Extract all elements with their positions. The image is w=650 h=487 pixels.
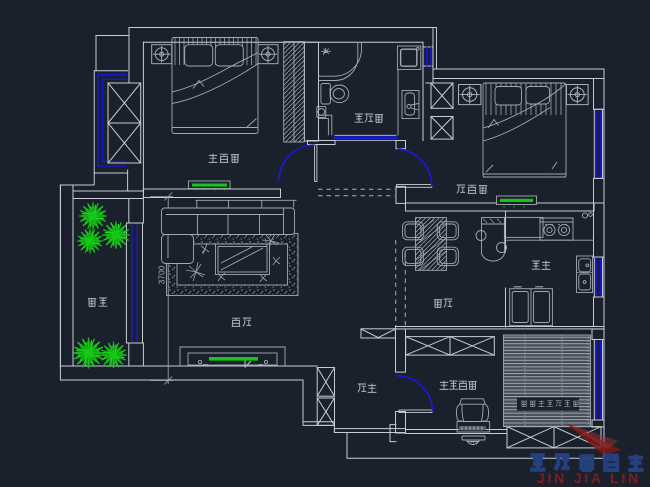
svg-text:JIN JIA LIN: JIN JIA LIN bbox=[537, 470, 641, 486]
svg-text:3700: 3700 bbox=[157, 265, 167, 284]
